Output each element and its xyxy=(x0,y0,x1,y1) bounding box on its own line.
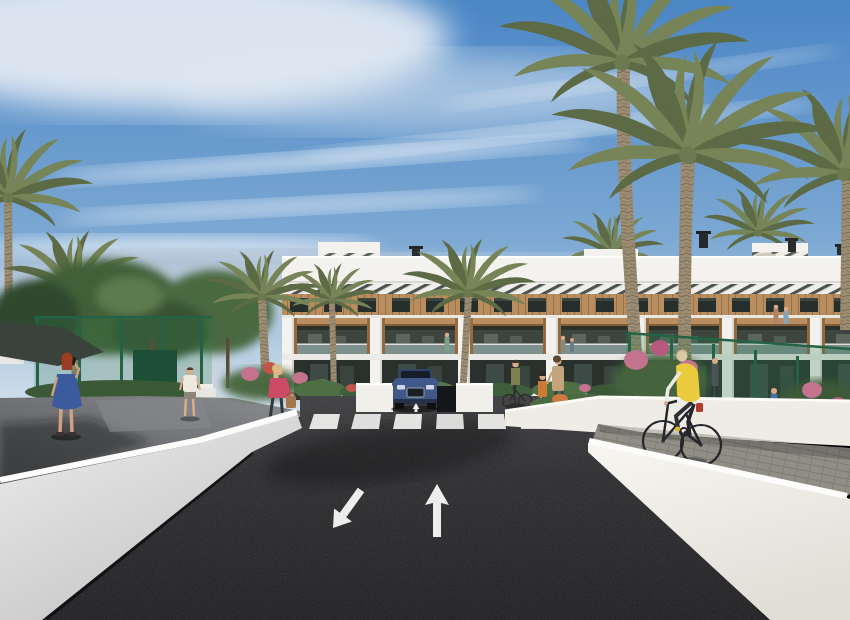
garage-opening xyxy=(437,386,456,412)
render-canvas xyxy=(0,0,850,620)
saddle-bag xyxy=(696,403,703,412)
architectural-rendering xyxy=(0,0,850,620)
